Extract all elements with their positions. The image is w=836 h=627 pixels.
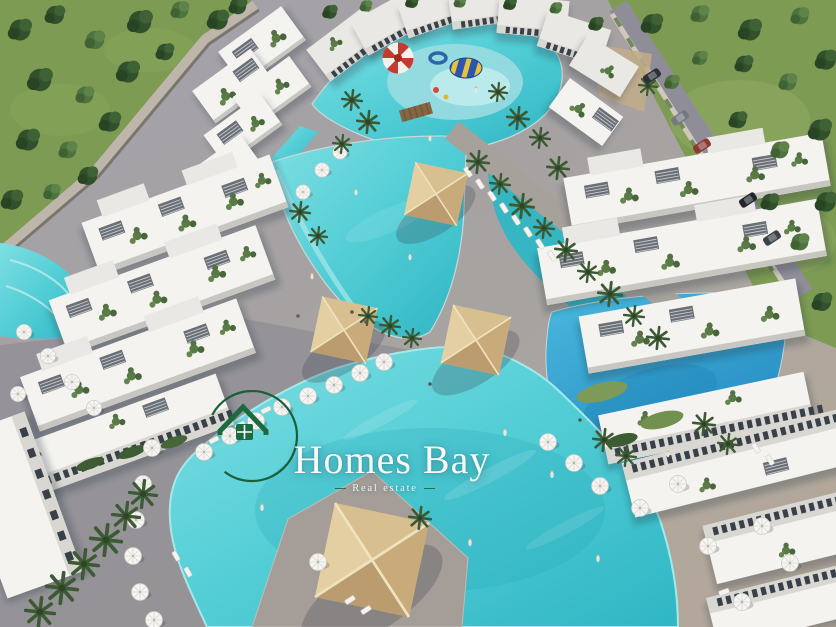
scene-canvas — [0, 0, 836, 627]
aerial-render-photo: Homes Bay Real estate — [0, 0, 836, 627]
water-slide-mushroom — [382, 42, 413, 73]
pool-toy — [444, 95, 449, 100]
pool-toy — [433, 87, 439, 93]
